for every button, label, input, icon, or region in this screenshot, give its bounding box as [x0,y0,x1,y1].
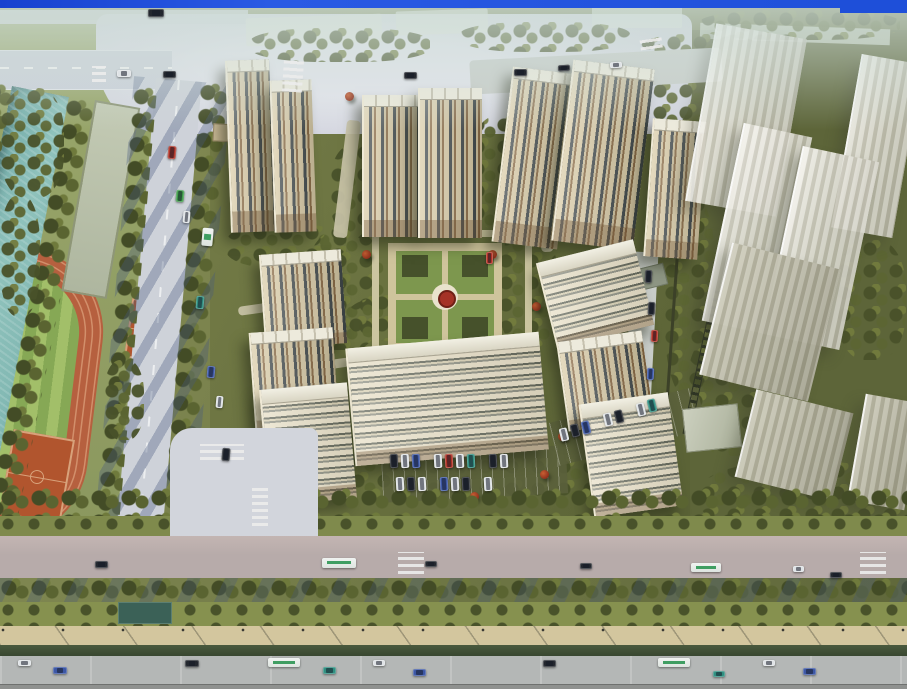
water-feature-pond [118,602,172,624]
garden-planter [402,255,428,277]
street-tree-shadow-stripes [0,578,907,604]
aerial-rendering-scene [0,0,907,689]
garden-planter [402,317,428,339]
distance-haze [0,0,907,130]
central-garden [388,243,502,351]
garden-planter [462,317,488,339]
south-boundary-trees [0,488,907,518]
arterial-road [0,656,907,684]
boulevard-lawn [0,602,907,628]
south-garden-feature [447,424,463,440]
garden-planter [462,255,488,277]
frame-blue-top [0,0,907,8]
frame-blue-top-right [840,0,907,13]
arterial-road-far-lane [0,684,907,689]
flat-warehouse [682,403,742,453]
frontage-street [0,536,907,578]
south-lawn-strip [0,516,907,538]
garden-pavilion-red [438,290,456,308]
south-garden [428,408,482,456]
promenade-path [0,626,907,646]
